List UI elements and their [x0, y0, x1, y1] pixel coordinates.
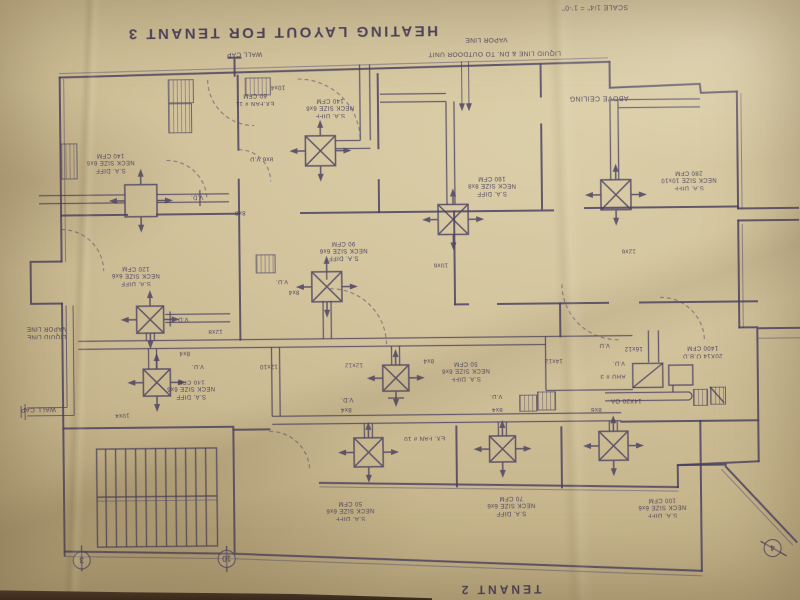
refrigerant-lines-label-left: LIQUID LINE VAPOR LINE	[14, 324, 78, 340]
supply-diffuser-symbol	[465, 412, 540, 487]
diffuser-tag: S.A. DIFF NECK SIZE 6x6 120 CFM	[96, 263, 176, 286]
supply-diffuser-symbol	[579, 157, 654, 232]
wall-cap-label-top: WALL CAP	[214, 49, 274, 58]
supply-diffuser-symbol	[331, 415, 406, 490]
duct-size-label: 10x4	[105, 410, 139, 418]
damper-label: V.D.	[185, 361, 211, 369]
duct-size-label: 12x10	[250, 361, 288, 369]
duct-size-label: 8x6	[583, 404, 609, 412]
duct-size-label: 8x4	[484, 404, 510, 412]
duct-size-label: 8x4	[333, 405, 359, 413]
unit-label: AHU # 3	[589, 371, 637, 379]
supply-diffuser-symbol	[358, 341, 433, 416]
damper-label: 20X14 O.B.D 1400 CFM	[665, 343, 739, 359]
duct-size-label: 8x6 V.D	[238, 153, 284, 161]
duct-size-label: 16x12	[615, 344, 651, 352]
grid-bubble: 10	[218, 550, 236, 568]
wall-grille-symbol	[256, 254, 276, 273]
duct-size-label: 8x8	[227, 208, 253, 216]
supply-diffuser-symbol	[576, 408, 651, 483]
supply-diffuser-symbol	[104, 163, 179, 238]
diffuser-tag: S.A. DIFF NECK SIZE 6x6 100 CFM	[622, 495, 702, 518]
damper-label: V.D.	[607, 358, 631, 366]
diffuser-tag: S.A. DIFF NECK SIZE 6x6 140 CFM	[290, 95, 370, 118]
damper-label: V.D.	[484, 391, 508, 399]
damper-label: V.D.	[184, 192, 210, 200]
supply-diffuser-symbol	[283, 113, 358, 188]
duct-size-label: 8x4	[171, 348, 197, 356]
wall-grille-symbol	[693, 389, 708, 406]
sheet-scale-note: SCALE 1/4" = 1'-0"	[530, 1, 660, 11]
wall-cap-label-left: WALL CAP	[9, 404, 67, 413]
damper-label: V.D	[593, 340, 615, 348]
damper-label: V.D.	[335, 395, 359, 403]
exhaust-fan-11-label: EX.FAN # 11 60 CFM	[220, 91, 290, 107]
diffuser-tag: S.A. DIFF NECK SIZE 6x6 140 CFM	[151, 377, 231, 400]
duct-size-label: 10x6	[426, 260, 456, 268]
outside-air-label: 14X20 OA	[598, 396, 654, 404]
wall-grille-symbol	[537, 391, 556, 410]
duct-size-label: 8x4	[281, 287, 307, 295]
staircase	[97, 448, 218, 547]
grid-bubble: 3	[73, 551, 91, 569]
grid-bubble: 4	[764, 539, 782, 557]
diffuser-tag: S.A. DIFF NECK SIZE 8x8 190 CFM	[451, 173, 533, 196]
diffuser-tag: S.A. DIFF NECK SIZE 10x10 280 CFM	[644, 167, 734, 190]
damper-label: V.D	[171, 314, 195, 322]
diffuser-tag: S.A. DIFF NECK SIZE 6x6 90 CFM	[303, 238, 383, 261]
grid-marker-ticks	[82, 538, 787, 573]
wall-grille-symbol	[168, 103, 192, 133]
duct-size-label: 14x12	[535, 355, 573, 363]
duct-size-label: 12x8	[200, 326, 230, 334]
diffuser-tag: S.A. DIFF NECK SIZE 6x6 140 CFM	[70, 150, 150, 173]
wall-grille-symbol	[519, 395, 537, 412]
wall-grille-symbol	[710, 387, 726, 405]
duct-size-label: 10x4	[261, 82, 295, 90]
diffuser-tag: S.A. DIFF NECK SIZE 6x6 50 CFM	[311, 498, 389, 521]
blueprint-sheet: WALL CAPVAPOR LINELIQUID LINE & DN. TO O…	[0, 0, 800, 600]
adjacent-tenant-label: TENANT 2	[425, 581, 575, 598]
sheet-title: HEATING LAYOUT FOR TENANT 3	[122, 20, 442, 42]
vapor-line-label-top: VAPOR LINE	[451, 35, 521, 44]
above-ceiling-label: ABOVE CEILING	[549, 92, 649, 102]
wall-grille-symbol	[168, 79, 194, 103]
blueprint-photo: WALL CAPVAPOR LINELIQUID LINE & DN. TO O…	[0, 0, 800, 600]
duct-size-label: 12x6	[613, 246, 643, 254]
exhaust-fan-10-label: EX. FAN # 10	[388, 433, 460, 441]
diffuser-tag: S.A. DIFF NECK SIZE 6x6 70 CFM	[472, 493, 550, 516]
duct-size-label: 12x12	[335, 360, 373, 368]
diffuser-tag: S.A. DIFF NECK SIZE 6x6 50 CFM	[427, 359, 505, 382]
damper-label: V.D.	[269, 276, 295, 284]
